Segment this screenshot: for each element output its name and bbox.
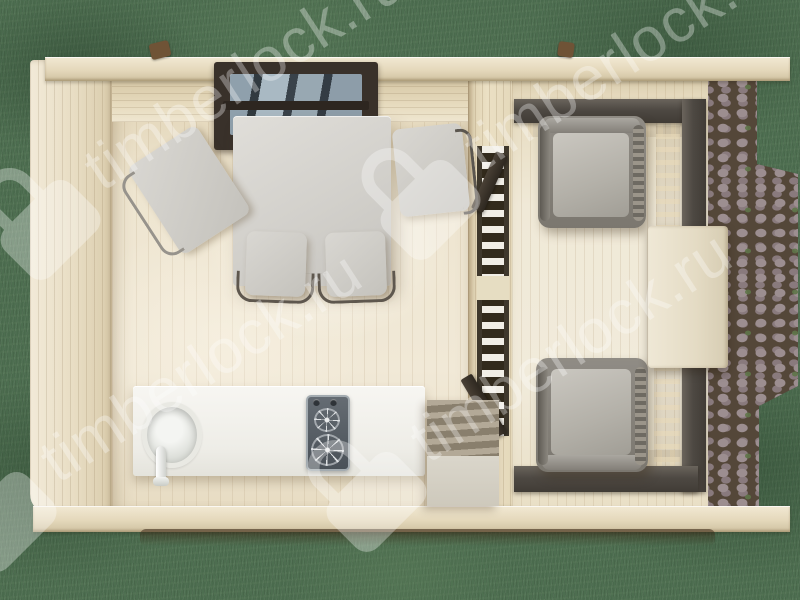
armchair-backrest — [542, 455, 642, 470]
sink-faucet — [156, 446, 166, 482]
cooktop-burner-small — [314, 408, 340, 432]
dining-chair-right — [392, 123, 471, 218]
cooktop-knob — [313, 399, 320, 406]
veranda-armchair-top — [538, 116, 646, 228]
dining-chair-bottom-right — [325, 231, 387, 297]
window-crossbar — [223, 101, 369, 110]
railing-balusters-right-lower — [654, 352, 680, 462]
armchair-cushion — [551, 369, 631, 455]
veranda-railing-right-upper — [682, 99, 706, 235]
shelf-slats — [427, 400, 499, 456]
kitchen-sink — [142, 402, 202, 468]
armchair-armrest-right — [633, 125, 644, 221]
cooktop-burner-large — [311, 434, 344, 466]
log-joint-stub — [557, 41, 575, 58]
armchair-armrest-right — [635, 367, 646, 465]
door-meeting-stile — [477, 276, 509, 300]
foundation-shadow — [140, 529, 715, 546]
dining-chair-bottom-left — [245, 231, 307, 297]
railing-balusters-right-upper — [656, 126, 680, 230]
shelf-steps — [427, 400, 499, 506]
shelf-front — [427, 456, 499, 506]
armchair-armrest-left — [538, 367, 548, 465]
cooktop-knob — [330, 399, 337, 406]
armchair-cushion — [553, 133, 629, 217]
scene: timberlock.ru timberlock.ru timberlock.r… — [0, 0, 800, 600]
armchair-backrest — [544, 118, 640, 133]
top-wall-beam — [45, 57, 790, 81]
veranda-armchair-bottom — [536, 358, 648, 472]
cabin-left-wall — [30, 60, 114, 514]
armchair-armrest-left — [540, 125, 550, 221]
veranda-side-table — [648, 226, 728, 368]
